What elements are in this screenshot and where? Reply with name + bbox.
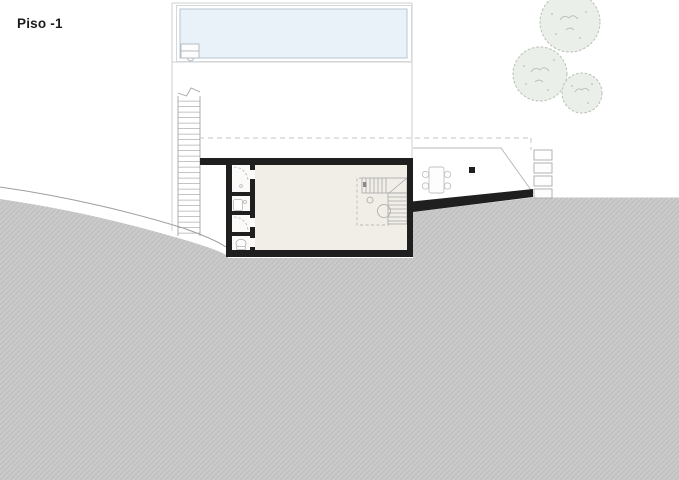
- garden-steps: [534, 150, 552, 198]
- floor-plan-drawing: [0, 0, 679, 480]
- plan-title: Piso -1: [17, 16, 63, 31]
- floor-plan-sheet: Piso -1: [0, 0, 679, 480]
- trees: [513, 0, 602, 113]
- column: [469, 167, 475, 173]
- sink: [234, 200, 243, 211]
- exterior-stairs: [178, 88, 200, 236]
- tree-icon: [513, 47, 567, 101]
- building: [200, 158, 413, 257]
- tree-icon: [540, 0, 600, 52]
- tree-icon: [562, 73, 602, 113]
- swimming-pool: [177, 6, 412, 62]
- outdoor-table-set: [422, 167, 450, 193]
